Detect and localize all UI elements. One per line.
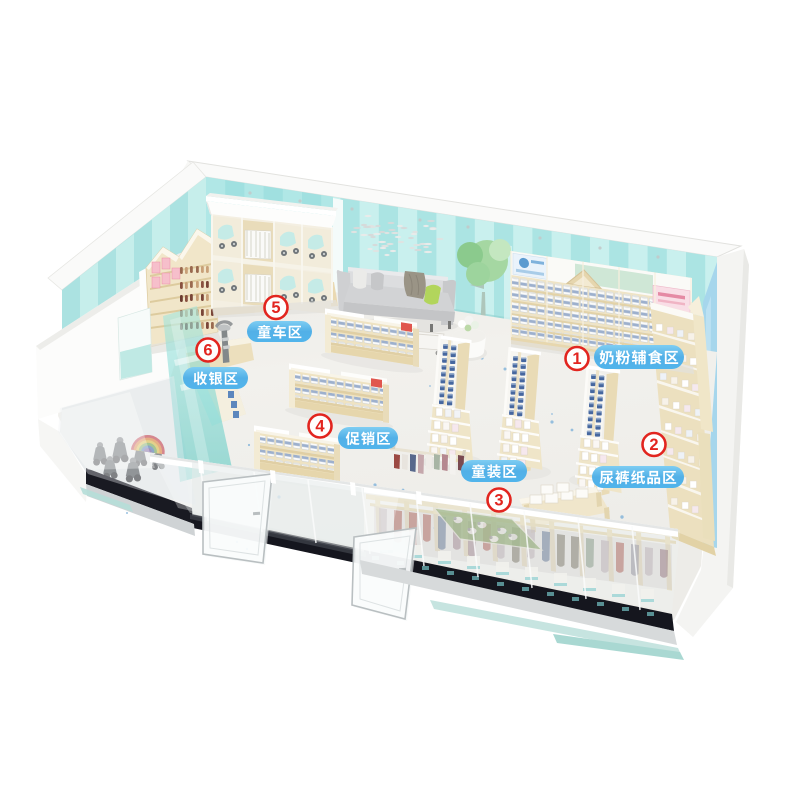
svg-text:1: 1: [572, 350, 581, 368]
svg-text:2: 2: [649, 436, 658, 454]
svg-text:5: 5: [271, 299, 280, 317]
svg-text:6: 6: [203, 342, 212, 360]
svg-text:3: 3: [494, 492, 503, 510]
svg-text:4: 4: [315, 418, 325, 436]
